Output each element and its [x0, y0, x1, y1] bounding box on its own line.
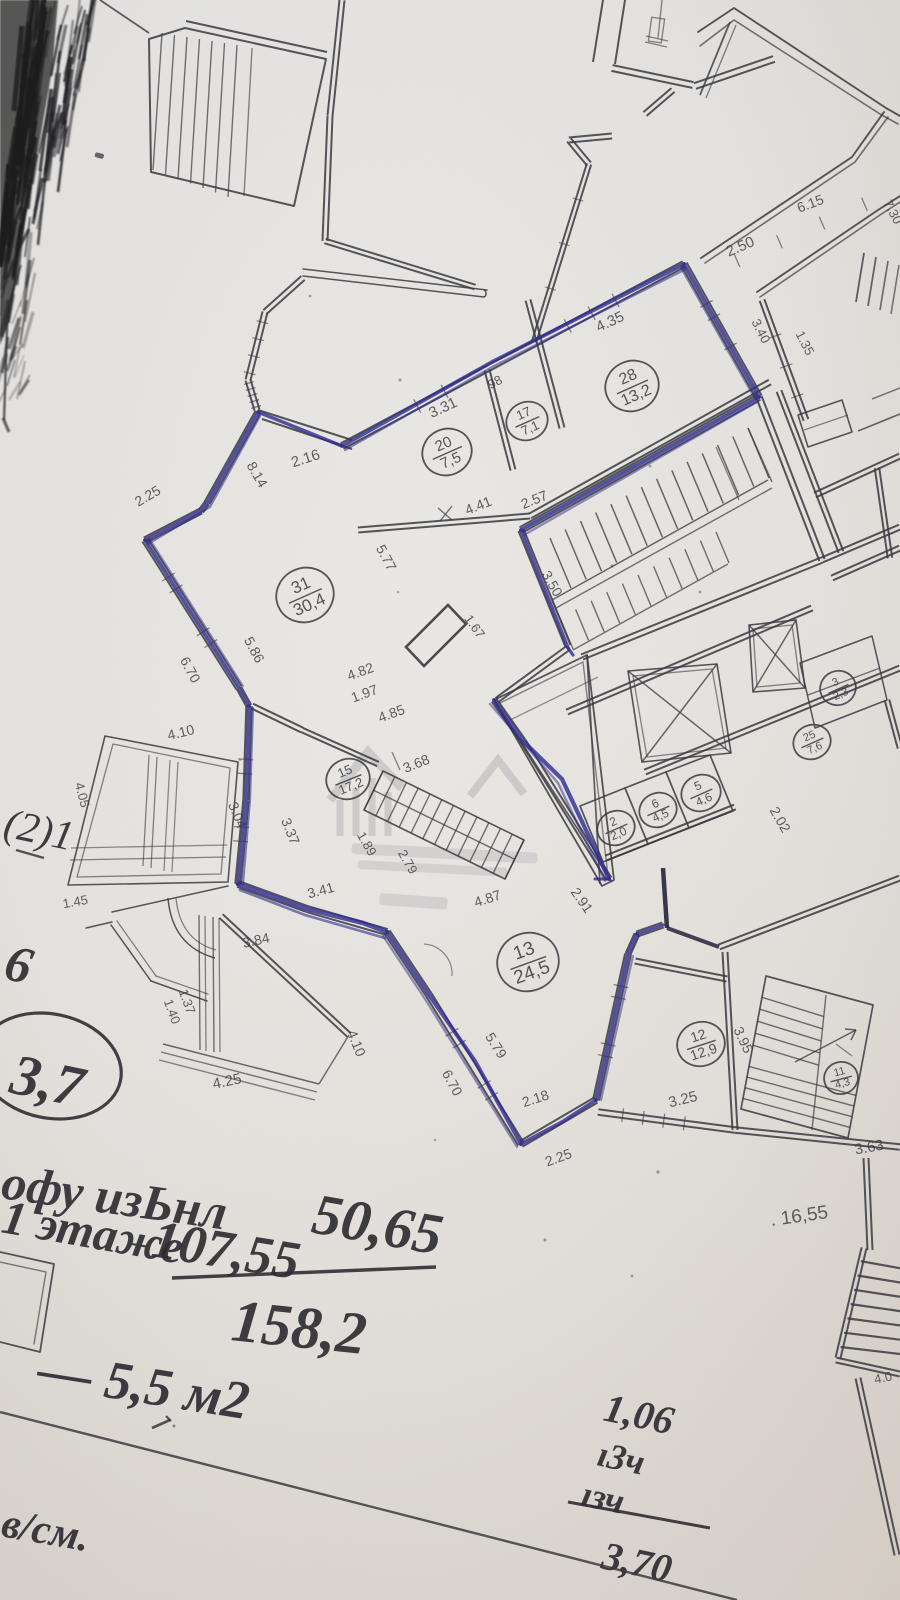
svg-text:158,2: 158,2: [229, 1287, 370, 1367]
